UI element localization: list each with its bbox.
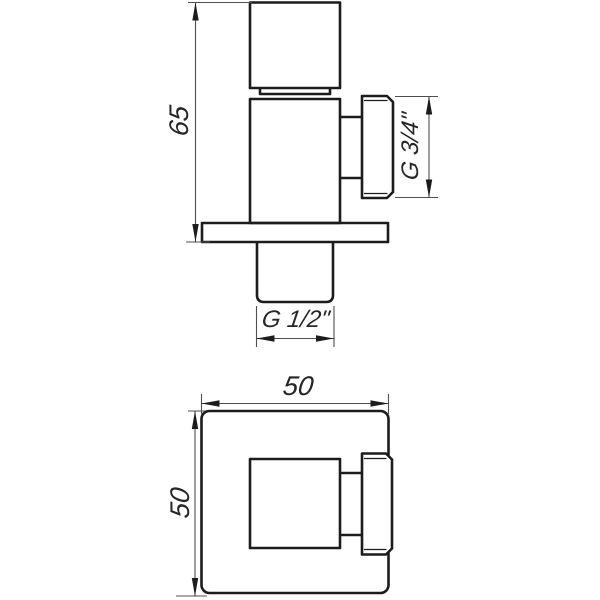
valve-handle-plan bbox=[250, 459, 340, 548]
side-nut-front bbox=[362, 96, 393, 198]
wall-plate-plan bbox=[202, 411, 389, 593]
valve-handle-front bbox=[250, 3, 340, 89]
bottom-spigot bbox=[257, 243, 333, 303]
dim65-label: 65 bbox=[163, 103, 194, 138]
dim50w-arrow-left bbox=[202, 400, 220, 406]
dim-g12-arrow-right bbox=[316, 335, 334, 341]
dim50w-label: 50 bbox=[281, 370, 315, 401]
valve-body-front bbox=[250, 99, 340, 223]
front-view: 65 G 3/4" G 1/2" bbox=[163, 3, 438, 348]
dim50h-arrow-up bbox=[192, 411, 198, 429]
dim65-arrow-up bbox=[192, 3, 198, 21]
dim50h-arrow-down bbox=[192, 578, 198, 596]
dim-bottom-thread: G 1/2" bbox=[257, 306, 335, 347]
side-nut-plan bbox=[362, 454, 392, 555]
dim-side-thread: G 3/4" bbox=[395, 97, 438, 198]
dim50h-label: 50 bbox=[164, 485, 195, 519]
dim50w-arrow-right bbox=[371, 400, 389, 406]
dim-g12-arrow-left bbox=[257, 335, 275, 341]
wall-plate-front bbox=[202, 223, 388, 242]
dim-g34-label: G 3/4" bbox=[397, 109, 424, 181]
dim-plan-width: 50 bbox=[202, 370, 389, 414]
dim-overall-height: 65 bbox=[163, 3, 252, 243]
dim-g34-arrow-up bbox=[426, 97, 432, 115]
dim-g12-label: G 1/2" bbox=[260, 306, 332, 333]
plan-view: 50 50 bbox=[164, 370, 392, 596]
dim65-arrow-down bbox=[192, 224, 198, 242]
dim-g34-arrow-down bbox=[426, 180, 432, 198]
valve-technical-drawing: 65 G 3/4" G 1/2" bbox=[0, 0, 600, 600]
